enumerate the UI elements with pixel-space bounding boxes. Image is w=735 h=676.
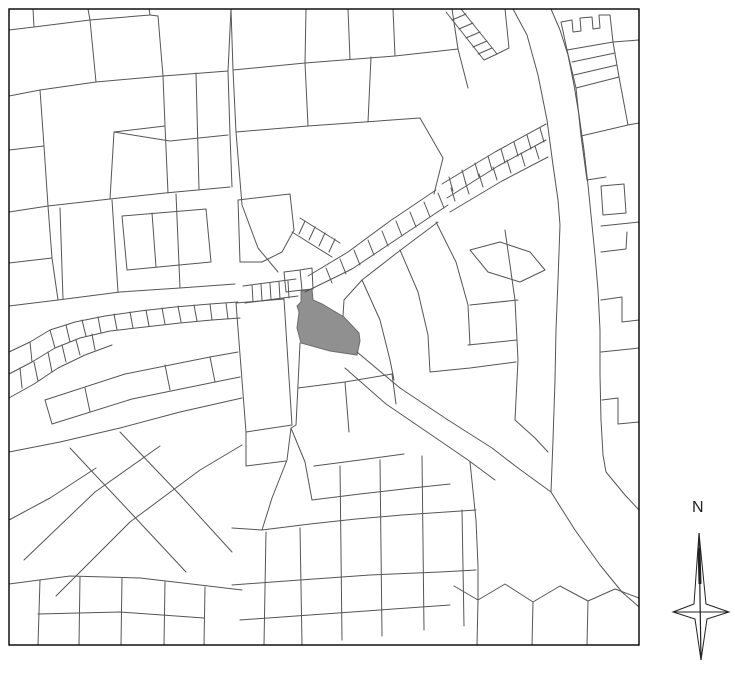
cadastral-map: N [0, 0, 735, 676]
page: N [0, 0, 735, 676]
highlighted-parcel [297, 289, 360, 355]
compass-rose [673, 533, 729, 660]
north-label: N [692, 499, 704, 516]
